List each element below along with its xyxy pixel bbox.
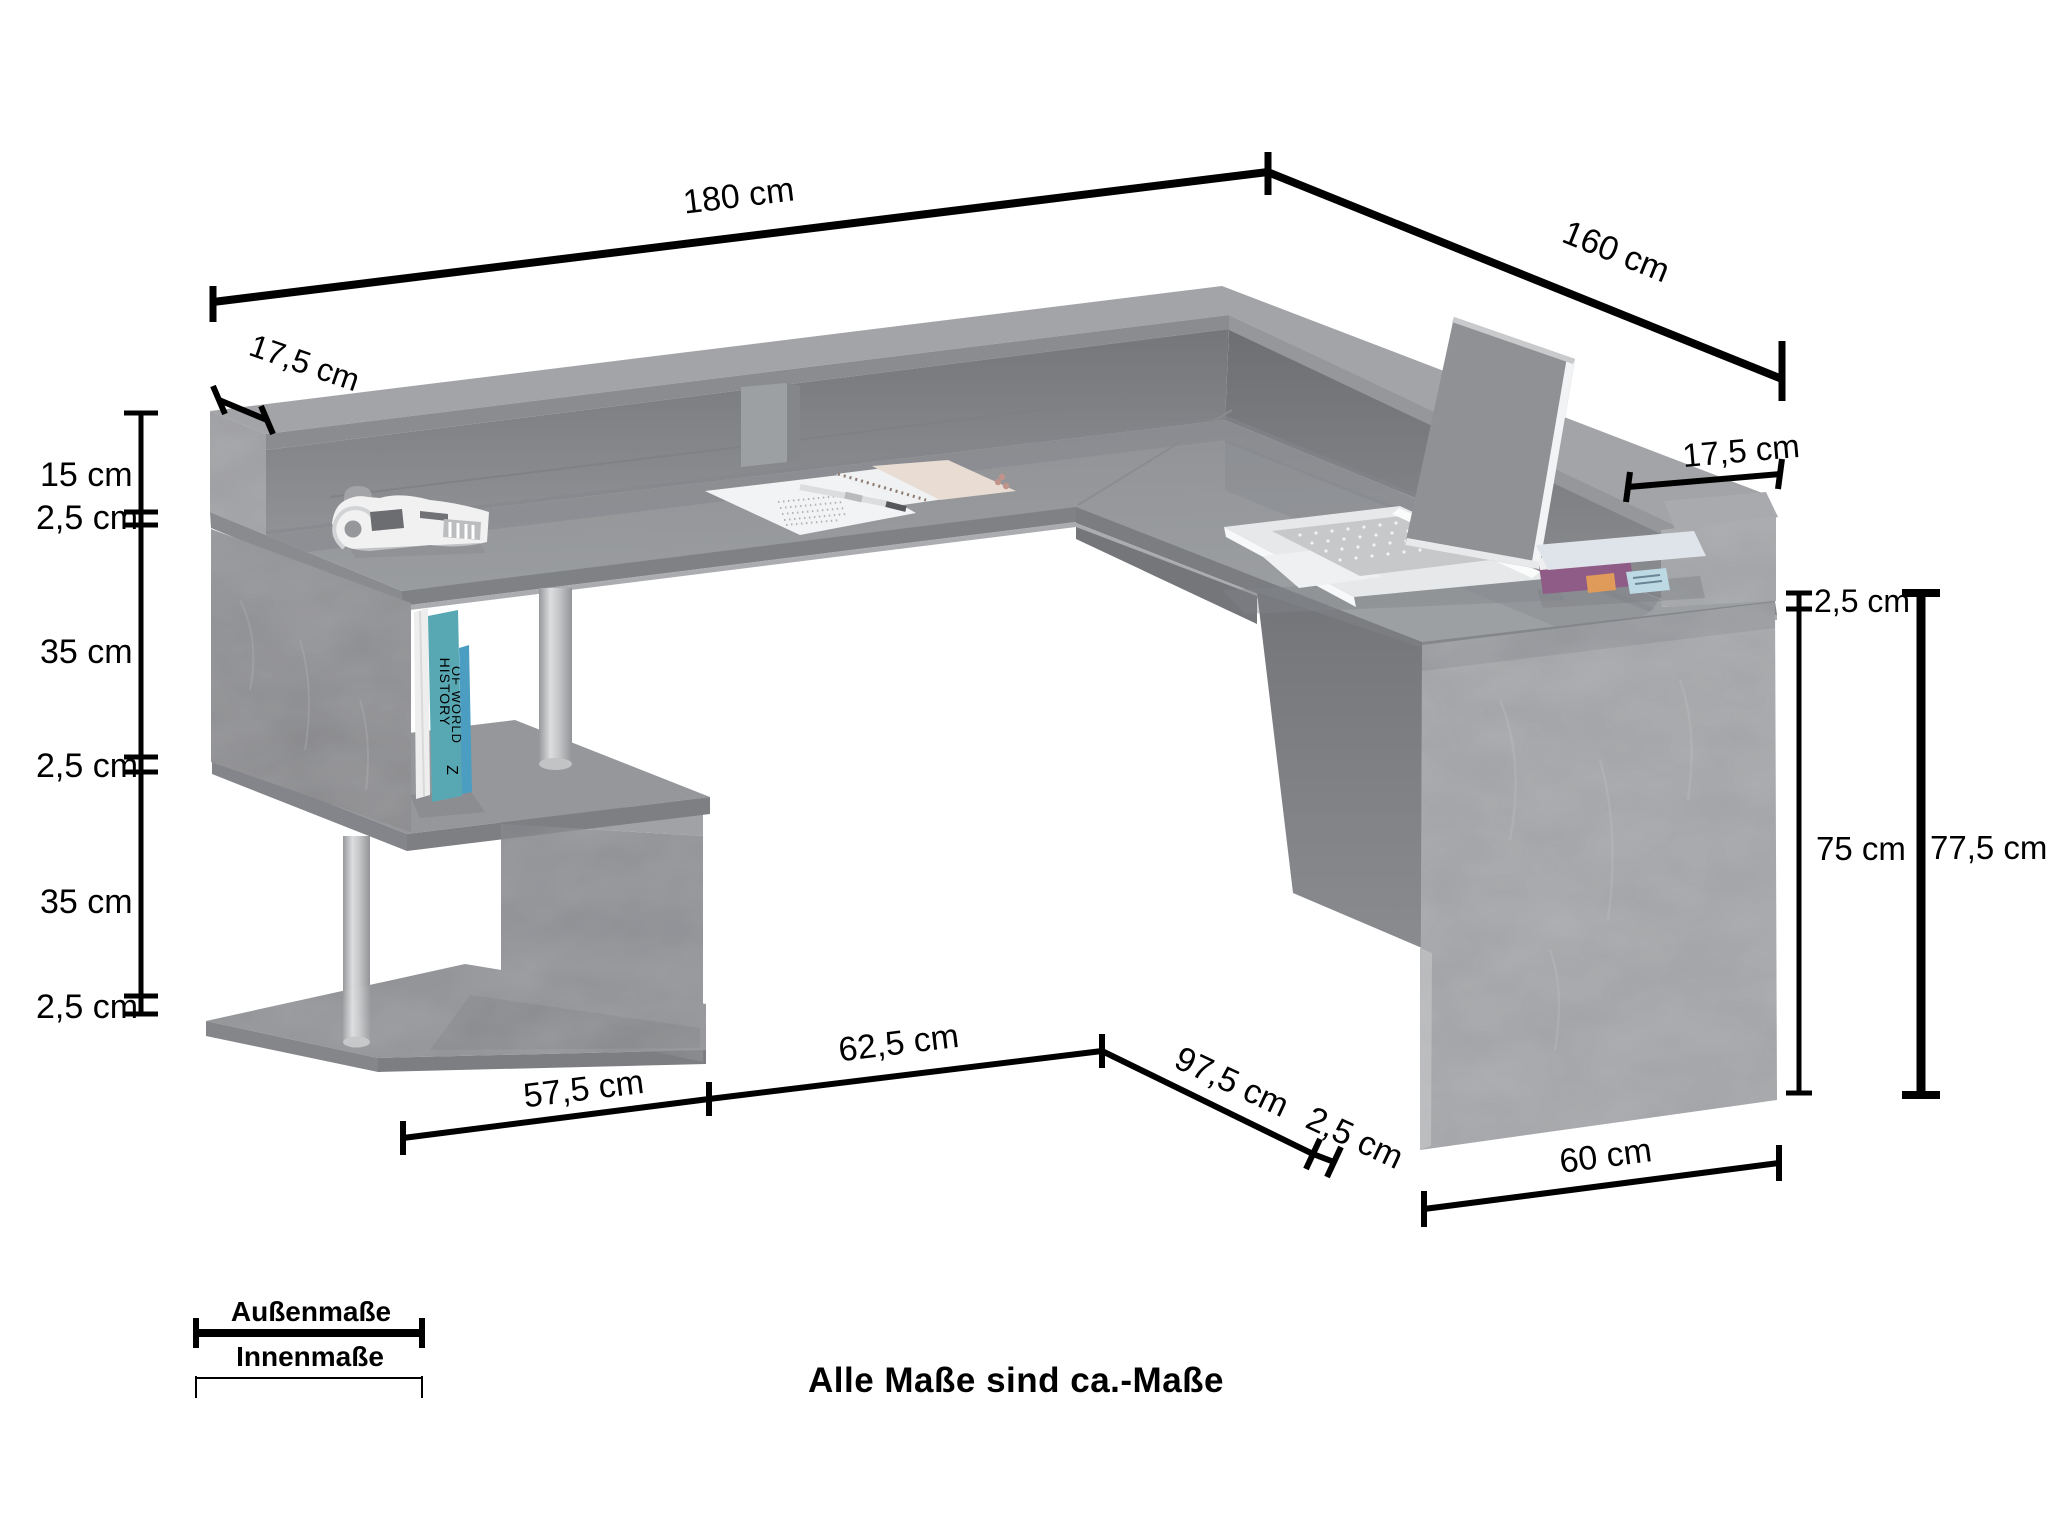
svg-text:15 cm: 15 cm bbox=[40, 456, 133, 494]
svg-text:35 cm: 35 cm bbox=[40, 633, 133, 671]
svg-text:2,5 cm: 2,5 cm bbox=[36, 747, 138, 785]
svg-text:Außenmaße: Außenmaße bbox=[231, 1296, 391, 1327]
svg-text:2,5 cm: 2,5 cm bbox=[36, 499, 138, 537]
svg-text:77,5 cm: 77,5 cm bbox=[1930, 829, 2047, 866]
svg-text:75 cm: 75 cm bbox=[1816, 830, 1906, 867]
svg-text:35 cm: 35 cm bbox=[40, 883, 133, 921]
svg-text:Z: Z bbox=[443, 765, 460, 775]
svg-text:Alle Maße sind ca.-Maße: Alle Maße sind ca.-Maße bbox=[808, 1361, 1224, 1400]
svg-text:Innenmaße: Innenmaße bbox=[236, 1341, 384, 1372]
svg-text:2,5 cm: 2,5 cm bbox=[1814, 583, 1910, 619]
svg-text:2,5 cm: 2,5 cm bbox=[36, 988, 138, 1026]
